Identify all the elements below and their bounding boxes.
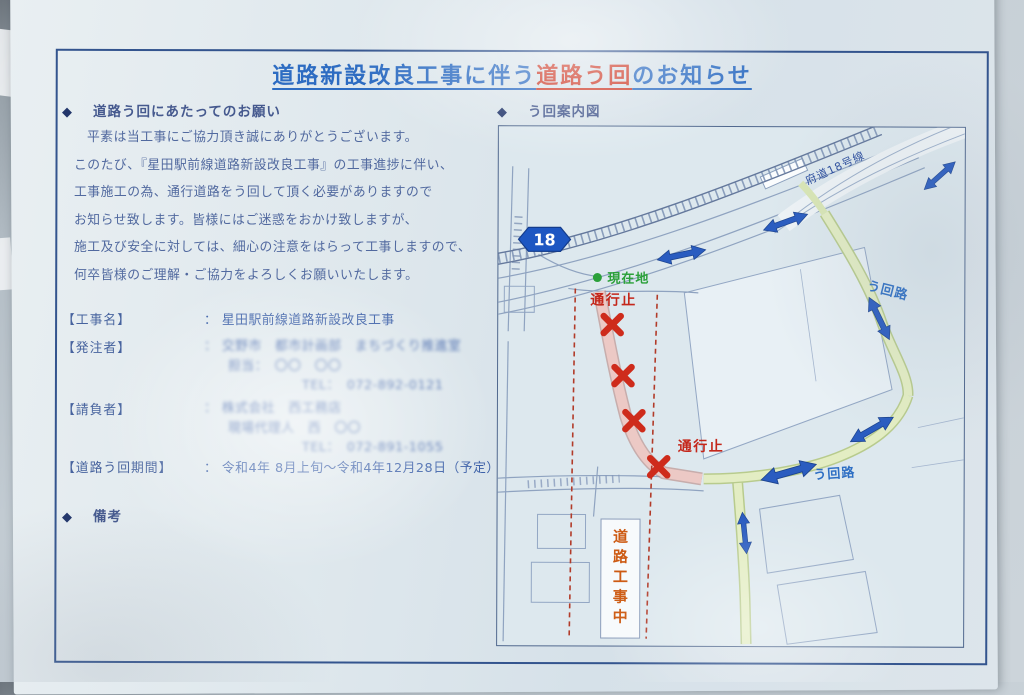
contractor-agent: 現場代理人 西 〇〇 xyxy=(204,419,443,439)
field-detour-period: 【道路う回期間】 ： 令和4年 8月上旬～令和4年12月28日（予定） xyxy=(62,457,500,476)
title-emphasis: 道路う回 xyxy=(536,64,632,89)
map-drawing: 18 現在地 通行止 通行止 府道18号線 う回路 う回路 xyxy=(497,126,965,647)
paragraph-line: 平素は当工事にご協力頂き誠にありがとうございます。 xyxy=(74,124,494,152)
photo-background: 道路新設改良工事に伴う道路う回のお知らせ ◆道路う回にあたってのお願い 平素は当… xyxy=(0,0,1024,682)
under-construction-sign: 道路工事中 xyxy=(600,519,640,639)
diamond-bullet-icon: ◆ xyxy=(62,105,73,120)
field-label: 【道路う回期間】 xyxy=(62,457,204,476)
field-label: 【請負者】 xyxy=(62,399,204,458)
route-shield-number: 18 xyxy=(533,230,555,249)
paragraph-line: このたび、『星田駅前線道路新設改良工事』の工事進捗に伴い、 xyxy=(74,152,494,180)
field-value-blurred: ： 交野市 都市計画部 まちづくり推進室 担当： 〇〇 〇〇 TEL： 072-… xyxy=(204,337,461,396)
diamond-bullet-icon: ◆ xyxy=(62,510,73,525)
request-heading-label: 道路う回にあたってのお願い xyxy=(93,104,281,120)
field-label: 【工事名】 xyxy=(62,309,204,328)
field-value: ： 令和4年 8月上旬～令和4年12月28日（予定） xyxy=(204,457,500,476)
paragraph-line: 何卒皆様のご理解・ご協力をよろしくお願いいたします。 xyxy=(74,262,494,290)
platform-hatch xyxy=(515,216,518,274)
request-section-heading: ◆道路う回にあたってのお願い xyxy=(62,100,281,120)
map-section-heading: ◆う回案内図 xyxy=(497,100,601,120)
title-suffix: のお知らせ xyxy=(632,64,752,89)
crossing-hatch xyxy=(528,478,620,484)
map-heading-label: う回案内図 xyxy=(528,104,601,120)
field-client: 【発注者】 ： 交野市 都市計画部 まちづくり推進室 担当： 〇〇 〇〇 TEL… xyxy=(62,337,461,396)
detour-guide-map: 18 現在地 通行止 通行止 府道18号線 う回路 う回路 道路工事中 xyxy=(496,125,966,648)
detour-arrow-icon xyxy=(920,157,959,194)
current-location-dot xyxy=(593,273,602,282)
field-value-blurred: ： 株式会社 西工務店 現場代理人 西 〇〇 TEL： 072-891-1055 xyxy=(204,399,443,458)
field-label: 【発注者】 xyxy=(62,337,204,396)
client-org: ： 交野市 都市計画部 まちづくり推進室 xyxy=(204,337,461,357)
field-project-name: 【工事名】 ： 星田駅前線道路新設改良工事 xyxy=(62,309,395,328)
remarks-heading-label: 備考 xyxy=(93,509,122,525)
current-location-label: 現在地 xyxy=(607,271,649,287)
field-contractor: 【請負者】 ： 株式会社 西工務店 現場代理人 西 〇〇 TEL： 072-89… xyxy=(62,399,443,458)
diamond-bullet-icon: ◆ xyxy=(497,105,508,120)
remarks-section-heading: ◆備考 xyxy=(62,505,122,525)
request-paragraph: 平素は当工事にご協力頂き誠にありがとうございます。 このたび、『星田駅前線道路新… xyxy=(74,124,494,289)
notice-title: 道路新設改良工事に伴う道路う回のお知らせ xyxy=(0,58,1024,90)
detour-route-label-2: う回路 xyxy=(813,465,856,484)
road-closed-label-1: 通行止 xyxy=(590,292,637,309)
paragraph-line: お知らせ致します。皆様にはご迷惑をおかけ致しますが、 xyxy=(74,207,494,235)
client-phone: TEL： 072-892-0121 xyxy=(204,376,461,396)
title-prefix: 道路新設改良工事に伴う xyxy=(272,64,536,89)
contractor-phone: TEL： 072-891-1055 xyxy=(204,438,443,458)
route-18-shield: 18 xyxy=(518,227,570,251)
field-value: ： 星田駅前線道路新設改良工事 xyxy=(204,309,395,328)
road-closed-label-2: 通行止 xyxy=(678,438,725,455)
client-contact: 担当： 〇〇 〇〇 xyxy=(204,357,461,377)
contractor-org: ： 株式会社 西工務店 xyxy=(204,399,443,419)
paragraph-line: 施工及び安全に対しては、細心の注意をはらって工事しますので、 xyxy=(74,234,494,262)
paragraph-line: 工事施工の為、通行道路をう回して頂く必要がありますので xyxy=(74,179,494,207)
